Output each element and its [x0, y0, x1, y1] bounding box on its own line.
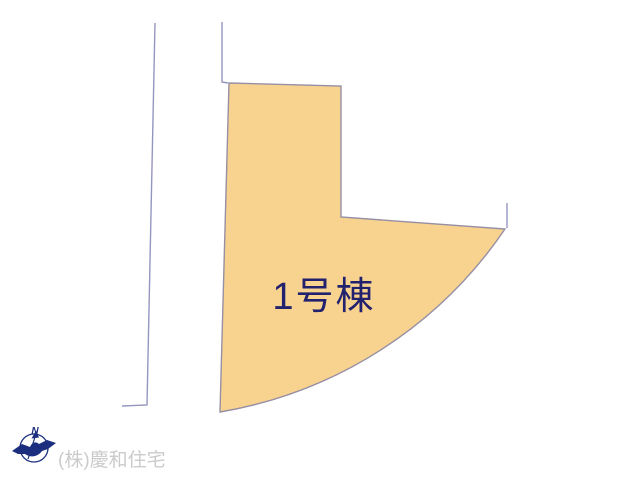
site-plan-drawing: 1号棟 N (株)慶和住宅 [0, 0, 640, 480]
compass-bird-icon [12, 440, 56, 456]
company-credit: (株)慶和住宅 [58, 449, 166, 471]
parcel-label: 1号棟 [272, 276, 375, 318]
parcel-lot-1 [220, 83, 505, 412]
compass-north-label: N [31, 426, 39, 437]
boundary-line-left-road [122, 23, 155, 406]
site-plan-canvas: 1号棟 N (株)慶和住宅 [0, 0, 640, 480]
boundary-line-upper-lot [222, 22, 228, 83]
compass: N [12, 426, 56, 462]
